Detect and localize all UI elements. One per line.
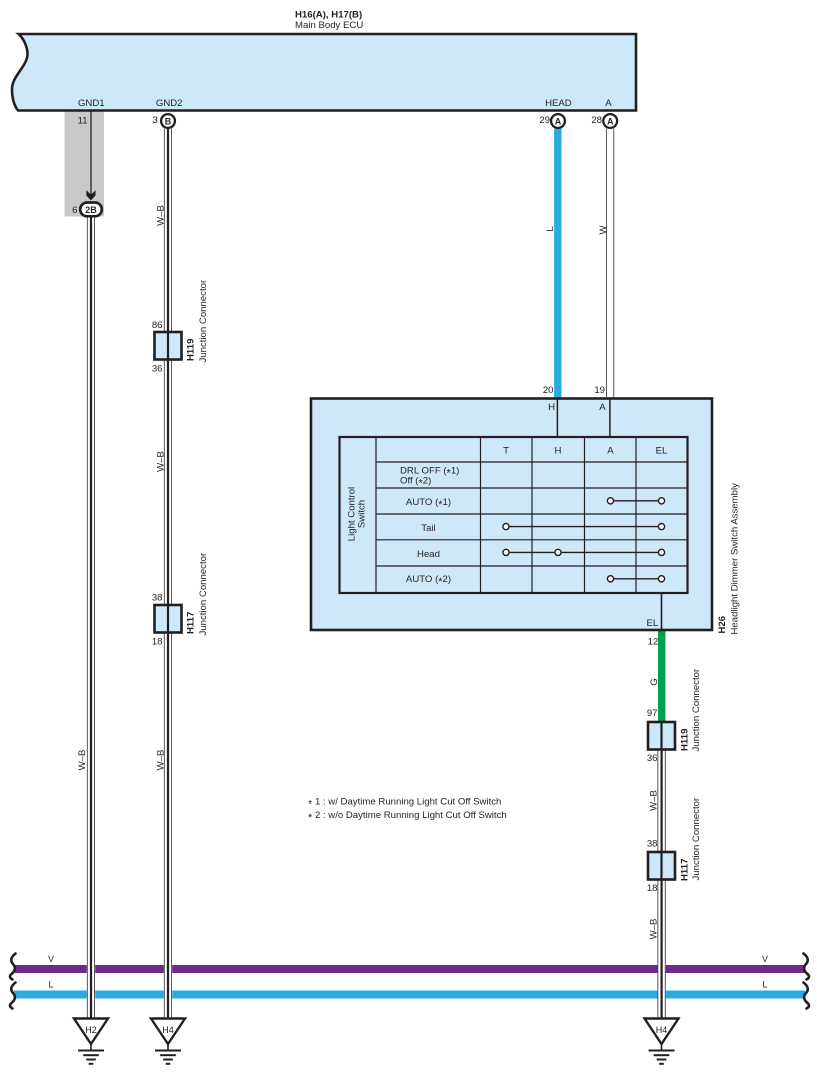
svg-text:W–B: W–B	[649, 919, 660, 940]
svg-text:V: V	[48, 954, 54, 964]
svg-text:W–B: W–B	[156, 451, 167, 472]
svg-text:G: G	[649, 678, 660, 685]
svg-text:W–B: W–B	[156, 750, 167, 771]
svg-text:H117: H117	[186, 612, 197, 634]
svg-text:12: 12	[648, 637, 659, 648]
svg-text:Switch: Switch	[357, 500, 368, 528]
svg-text:H2: H2	[85, 1025, 97, 1035]
svg-text:A: A	[607, 116, 614, 126]
svg-text:2B: 2B	[85, 205, 97, 215]
svg-text:Head: Head	[417, 549, 440, 560]
svg-text:Tail: Tail	[421, 523, 435, 534]
svg-text:36: 36	[152, 364, 163, 375]
svg-text:W–B: W–B	[156, 205, 167, 226]
svg-text:H4: H4	[656, 1025, 668, 1035]
svg-text:Junction Connector: Junction Connector	[198, 552, 209, 635]
svg-text:Junction Connector: Junction Connector	[198, 279, 209, 362]
svg-text:97: 97	[647, 708, 658, 719]
svg-text:18: 18	[152, 637, 163, 648]
svg-text:W: W	[598, 225, 609, 235]
svg-text:H117: H117	[680, 859, 691, 881]
svg-text:Junction Connector: Junction Connector	[691, 797, 702, 880]
svg-text:11: 11	[78, 116, 88, 127]
svg-text:38: 38	[152, 593, 163, 604]
svg-text:6: 6	[72, 205, 77, 216]
svg-text:19: 19	[594, 385, 605, 396]
svg-text:A: A	[555, 116, 562, 126]
svg-text:Main Body ECU: Main Body ECU	[295, 20, 363, 31]
svg-text:H119: H119	[680, 729, 691, 751]
svg-text:Headlight Dimmer Switch Assemb: Headlight Dimmer Switch Assembly	[730, 483, 741, 635]
svg-text:20: 20	[543, 385, 554, 396]
svg-text:3: 3	[153, 115, 158, 126]
svg-text:36: 36	[647, 753, 658, 764]
svg-text:EL: EL	[656, 446, 668, 457]
svg-text:H119: H119	[186, 339, 197, 361]
svg-text:T: T	[503, 446, 509, 457]
svg-text:86: 86	[152, 320, 163, 331]
svg-text:L: L	[48, 980, 53, 990]
svg-text:18: 18	[647, 883, 658, 894]
svg-text:L: L	[545, 226, 556, 232]
svg-text:GND1: GND1	[78, 98, 105, 109]
svg-text:Junction Connector: Junction Connector	[691, 668, 702, 751]
svg-text:V: V	[762, 954, 768, 964]
svg-text:38: 38	[647, 839, 658, 850]
svg-text:A: A	[605, 98, 612, 109]
svg-text:H: H	[555, 446, 562, 457]
svg-text:A: A	[599, 402, 606, 413]
svg-text:H26: H26	[717, 616, 728, 634]
svg-text:H16(A), H17(B): H16(A), H17(B)	[295, 10, 362, 21]
svg-text:GND2: GND2	[156, 98, 183, 109]
svg-text:HEAD: HEAD	[545, 98, 572, 109]
svg-text:A: A	[607, 446, 614, 457]
svg-text:H4: H4	[162, 1025, 174, 1035]
svg-text:EL: EL	[646, 618, 658, 629]
svg-text:W–B: W–B	[77, 750, 88, 771]
svg-text:H: H	[548, 402, 555, 413]
svg-text:B: B	[165, 116, 172, 126]
svg-text:28: 28	[591, 115, 602, 126]
svg-text:29: 29	[539, 115, 550, 126]
svg-text:W–B: W–B	[649, 790, 660, 811]
svg-text:L: L	[762, 980, 767, 990]
